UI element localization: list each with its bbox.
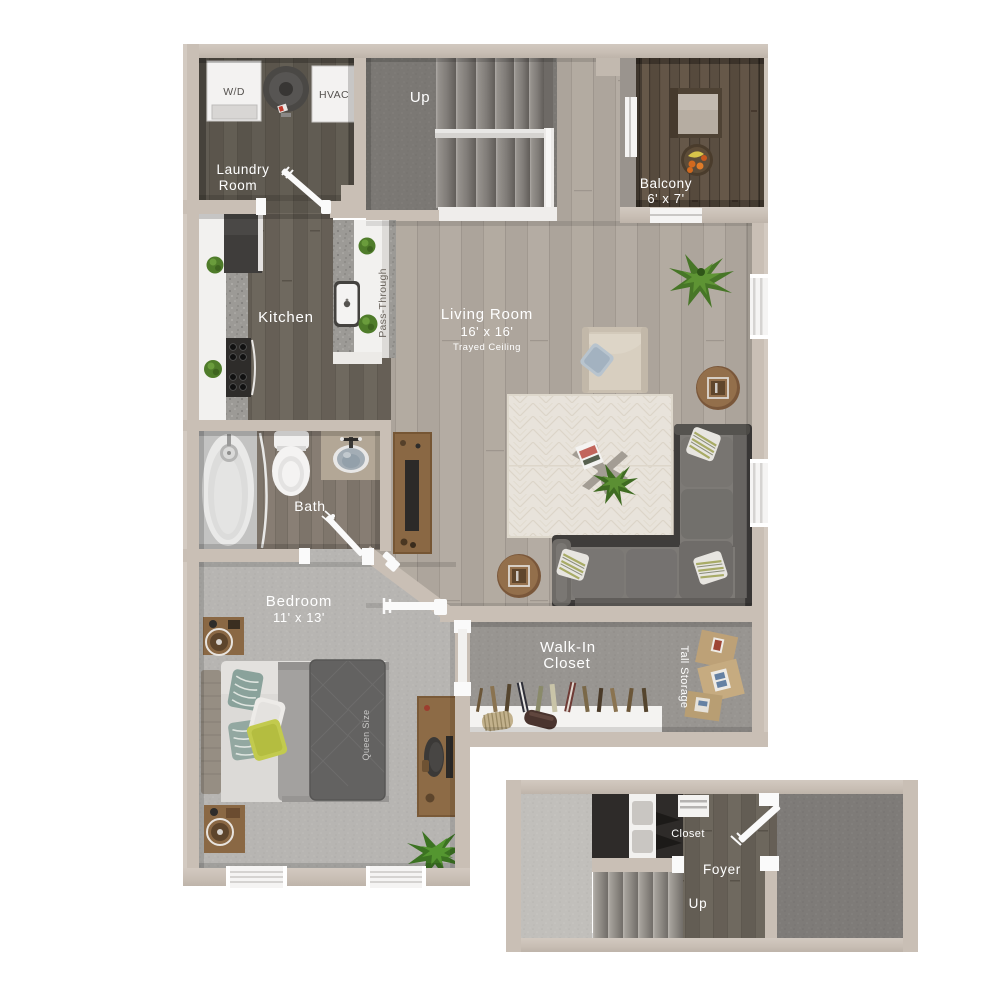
svg-text:Bedroom: Bedroom <box>266 593 332 610</box>
svg-text:Closet: Closet <box>543 655 590 672</box>
svg-text:W/D: W/D <box>223 86 245 98</box>
svg-text:Balcony: Balcony <box>640 176 692 191</box>
svg-text:Up: Up <box>410 89 430 106</box>
svg-text:Walk-In: Walk-In <box>540 639 596 656</box>
svg-text:16' x 16': 16' x 16' <box>460 324 513 339</box>
svg-text:6' x 7': 6' x 7' <box>647 191 684 206</box>
svg-text:Queen Size: Queen Size <box>361 709 371 760</box>
svg-text:Up: Up <box>689 896 708 911</box>
svg-text:Trayed Ceiling: Trayed Ceiling <box>453 342 521 353</box>
svg-text:11' x 13': 11' x 13' <box>273 610 325 625</box>
svg-text:Living Room: Living Room <box>441 306 533 323</box>
svg-text:Closet: Closet <box>671 828 705 840</box>
svg-text:Room: Room <box>219 178 257 193</box>
svg-text:Kitchen: Kitchen <box>258 309 314 326</box>
svg-text:Bath: Bath <box>294 498 326 514</box>
svg-text:Foyer: Foyer <box>703 862 741 877</box>
svg-text:Laundry: Laundry <box>217 162 270 177</box>
svg-text:Pass-Through: Pass-Through <box>377 268 389 338</box>
svg-text:Tall Storage: Tall Storage <box>678 646 690 709</box>
svg-text:HVAC: HVAC <box>319 89 349 101</box>
